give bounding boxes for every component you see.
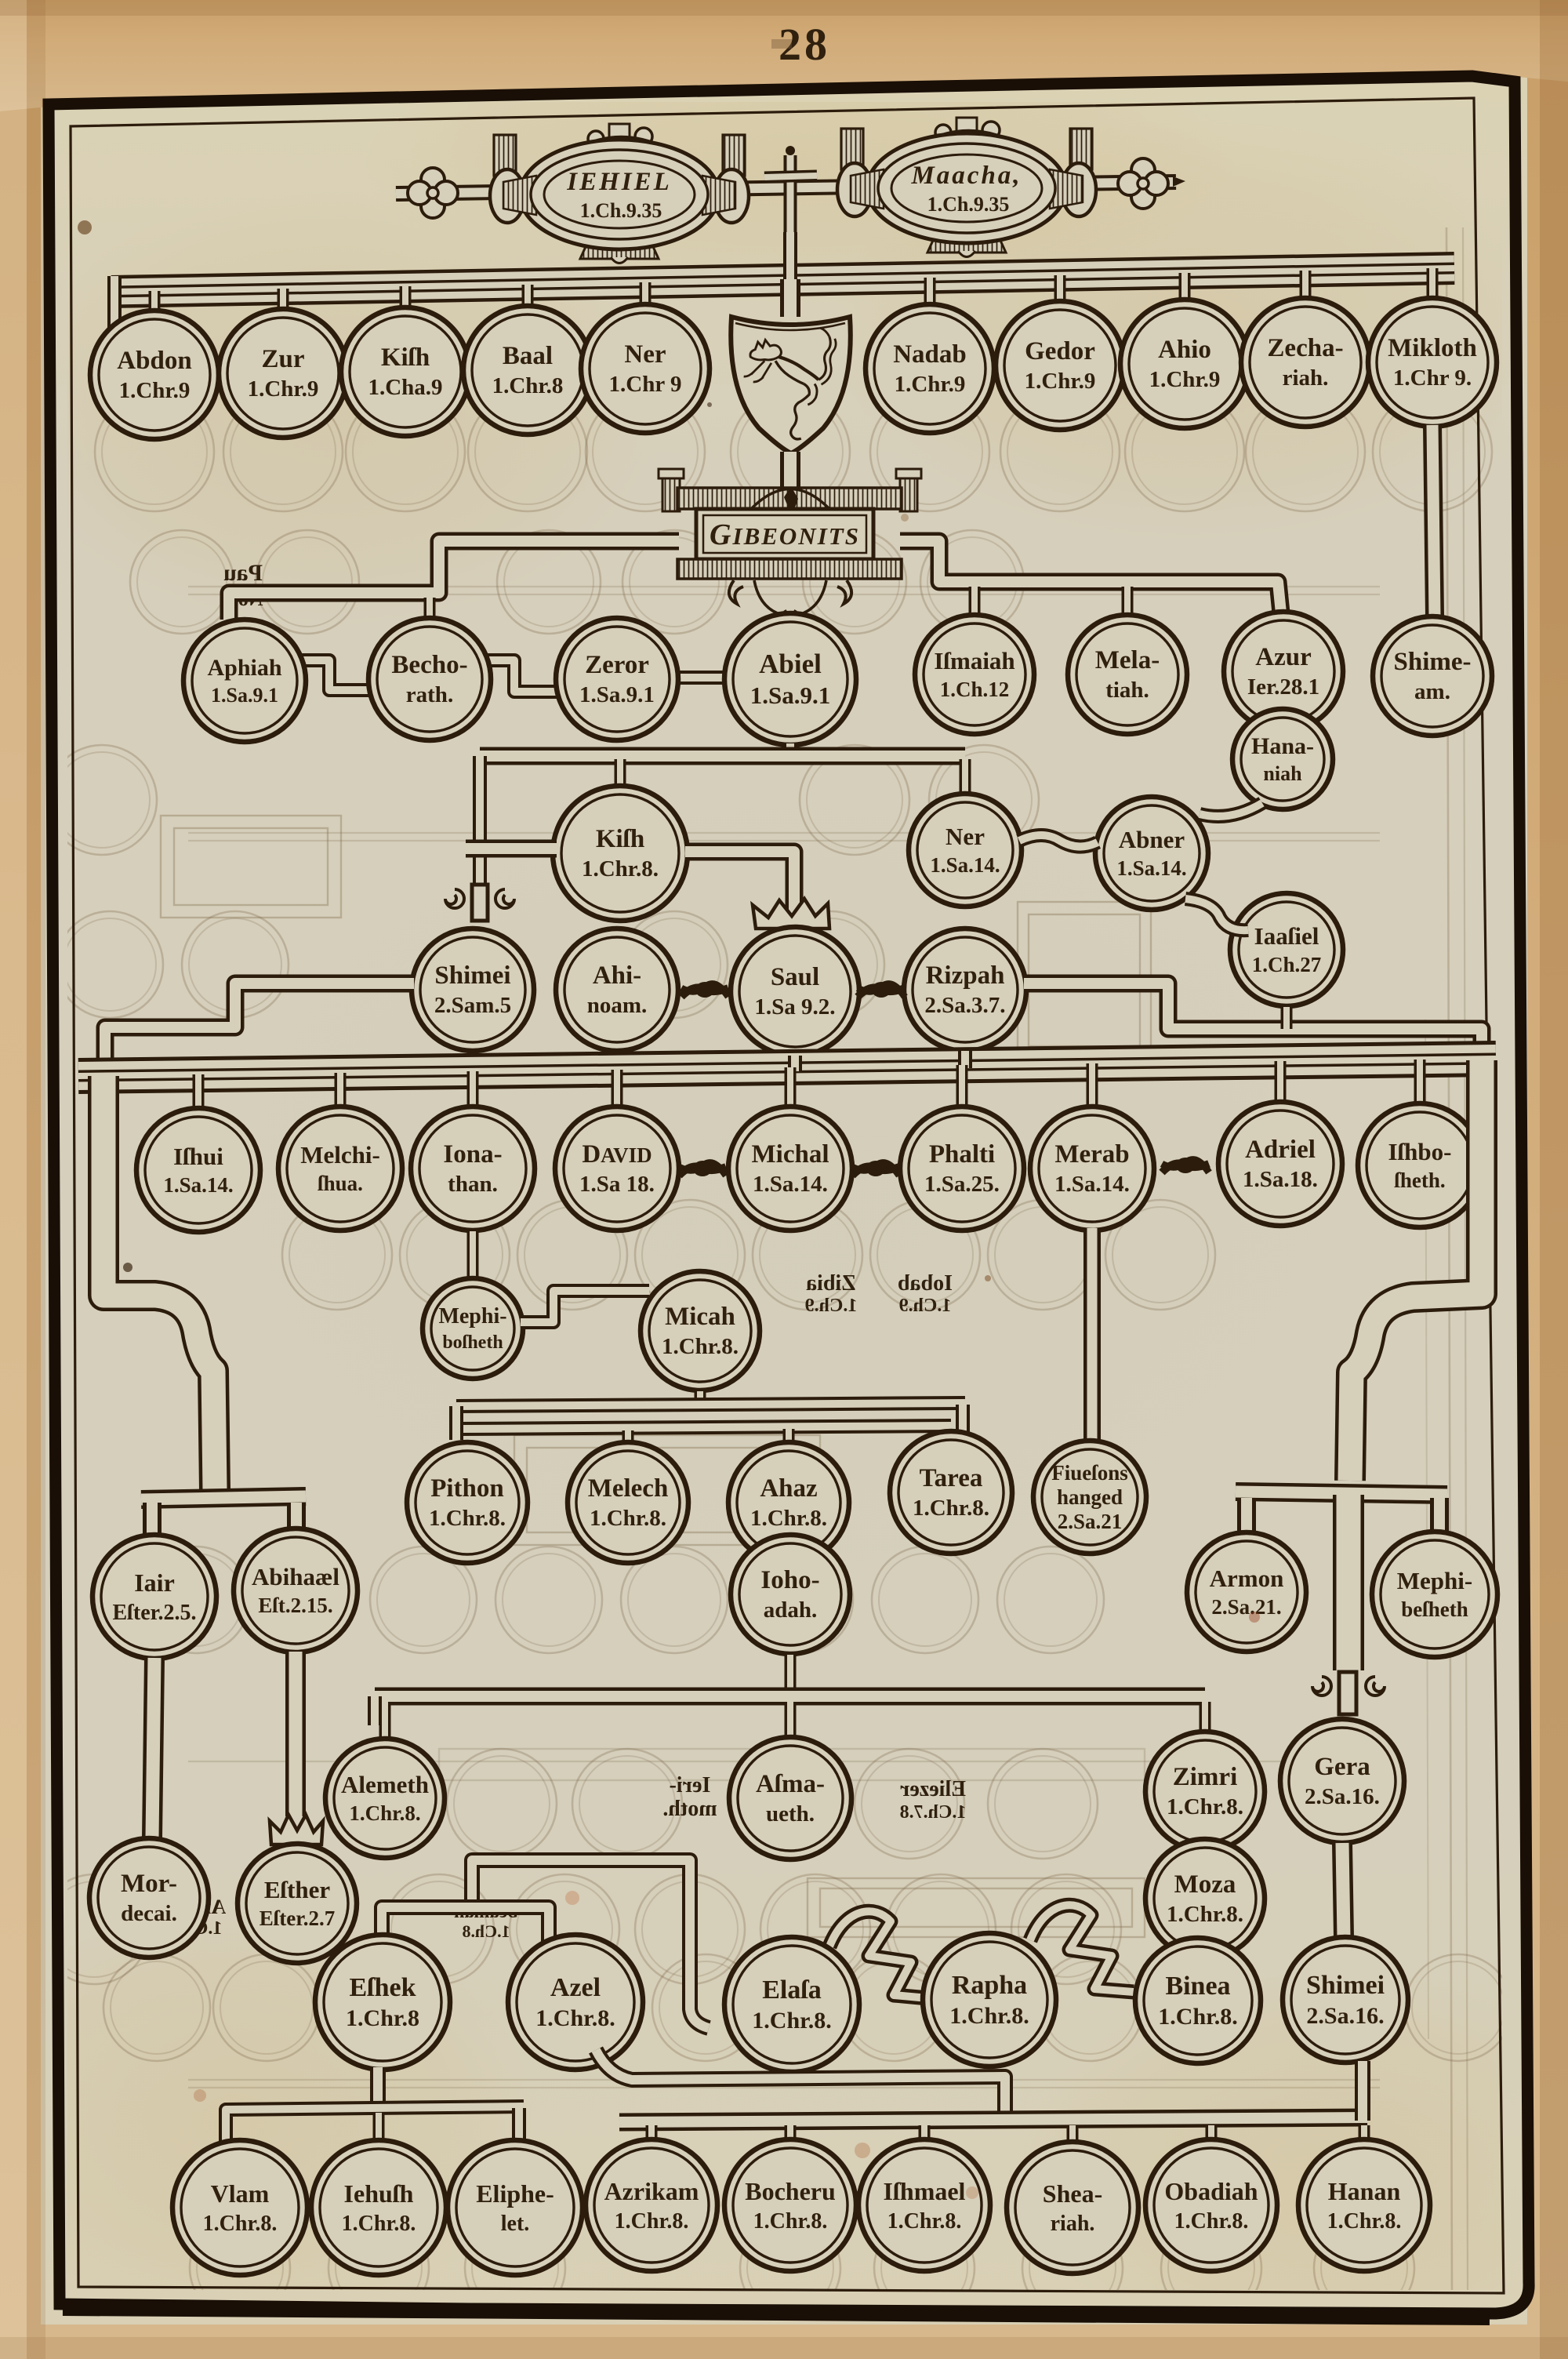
svg-text:1.Chr.8.: 1.Chr.8.	[1158, 2004, 1237, 2030]
svg-text:ſhua.: ſhua.	[318, 1172, 363, 1195]
svg-text:1.Chr.8.: 1.Chr.8.	[342, 2212, 416, 2236]
svg-text:Azur: Azur	[1255, 643, 1311, 671]
svg-text:1.Chr.8: 1.Chr.8	[492, 373, 564, 398]
svg-text:Abner: Abner	[1119, 826, 1185, 853]
svg-text:ueth.: ueth.	[766, 1801, 815, 1826]
svg-text:1.Chr.8.: 1.Chr.8.	[1167, 1794, 1243, 1819]
svg-text:Saul: Saul	[771, 963, 819, 991]
svg-text:Mephi-: Mephi-	[438, 1304, 506, 1329]
svg-text:1.Chr.8.: 1.Chr.8.	[535, 2005, 615, 2031]
svg-text:1.Sa.18.: 1.Sa.18.	[1243, 1167, 1318, 1192]
svg-text:Ioho-: Ioho-	[760, 1566, 819, 1594]
svg-text:Eſter.2.5.: Eſter.2.5.	[112, 1601, 196, 1625]
svg-text:1.Sa.25.: 1.Sa.25.	[924, 1172, 1000, 1197]
svg-text:Melchi-: Melchi-	[300, 1141, 380, 1169]
svg-text:Nadab: Nadab	[893, 340, 967, 369]
svg-text:Mikloth: Mikloth	[1388, 334, 1477, 362]
svg-text:Hana-: Hana-	[1251, 733, 1314, 759]
svg-text:1.Chr.8: 1.Chr.8	[346, 2005, 419, 2031]
svg-text:Ahaz: Ahaz	[760, 1474, 817, 1503]
svg-text:2.Sam.5: 2.Sam.5	[434, 993, 511, 1018]
svg-text:Eſter.2.7: Eſter.2.7	[260, 1906, 336, 1930]
svg-text:Moza: Moza	[1174, 1870, 1236, 1899]
svg-text:Ner: Ner	[624, 340, 666, 369]
svg-text:Iſhui: Iſhui	[173, 1143, 223, 1170]
svg-text:Iehuſh: Iehuſh	[344, 2179, 414, 2208]
svg-text:Zibia: Zibia	[806, 1271, 856, 1296]
svg-text:Phalti: Phalti	[929, 1140, 995, 1169]
svg-text:Abiel: Abiel	[759, 649, 822, 679]
svg-text:1.Chr.8.: 1.Chr.8.	[750, 1506, 827, 1531]
svg-text:adah.: adah.	[764, 1598, 818, 1623]
svg-text:1.Chr.8.: 1.Chr.8.	[1174, 2209, 1249, 2234]
svg-text:IEHIEL: IEHIEL	[566, 168, 672, 196]
svg-text:1.Sa.14.: 1.Sa.14.	[1054, 1172, 1130, 1197]
svg-text:beſheth: beſheth	[1401, 1598, 1468, 1621]
svg-text:1.Chr 9.: 1.Chr 9.	[1393, 365, 1472, 391]
svg-text:GIBEONITS: GIBEONITS	[710, 518, 860, 551]
svg-text:Mor-: Mor-	[121, 1870, 177, 1898]
svg-text:Zur: Zur	[261, 345, 304, 373]
svg-text:Ahi-: Ahi-	[593, 961, 641, 990]
svg-text:Ier.28.1: Ier.28.1	[1247, 674, 1319, 700]
svg-text:1.Ch.9.35: 1.Ch.9.35	[580, 199, 662, 222]
svg-text:1.Sa 9.2.: 1.Sa 9.2.	[754, 994, 835, 1020]
svg-text:1.Ch.8: 1.Ch.8	[462, 1921, 510, 1941]
svg-text:1.Chr 9: 1.Chr 9	[609, 372, 682, 397]
svg-text:1.Chr.9: 1.Chr.9	[248, 376, 319, 402]
svg-text:Fiueſons: Fiueſons	[1051, 1461, 1128, 1485]
svg-text:1.Chr.8.: 1.Chr.8.	[752, 2008, 831, 2034]
svg-text:2.Sa.21: 2.Sa.21	[1058, 1510, 1123, 1533]
svg-text:1.Chr.8.: 1.Chr.8.	[887, 2209, 962, 2234]
svg-text:Elaſa: Elaſa	[762, 1976, 822, 2005]
svg-text:Shea-: Shea-	[1043, 2179, 1102, 2208]
svg-text:1.Ch.9.35: 1.Ch.9.35	[927, 193, 1010, 216]
svg-text:Eliphe-: Eliphe-	[476, 2179, 554, 2208]
svg-text:1.Sa.14.: 1.Sa.14.	[930, 853, 1000, 877]
svg-text:Merab: Merab	[1054, 1140, 1129, 1169]
svg-text:Shimei: Shimei	[1306, 1971, 1385, 2000]
svg-text:1.Chr.8.: 1.Chr.8.	[662, 1334, 739, 1359]
svg-text:Shime-: Shime-	[1394, 648, 1472, 676]
svg-text:Eſther: Eſther	[264, 1876, 331, 1903]
svg-text:Gedor: Gedor	[1025, 337, 1095, 365]
svg-text:1.Ch.12: 1.Ch.12	[940, 678, 1010, 701]
svg-text:1.Sa 18.: 1.Sa 18.	[579, 1172, 655, 1197]
svg-text:noam.: noam.	[587, 993, 648, 1018]
svg-text:Alemeth: Alemeth	[341, 1771, 429, 1798]
svg-text:Azrikam: Azrikam	[604, 2177, 699, 2205]
svg-text:am.: am.	[1414, 679, 1450, 704]
svg-text:Aſma-: Aſma-	[756, 1770, 825, 1798]
svg-text:Rapha: Rapha	[952, 1971, 1027, 2000]
svg-text:1.Ch.9: 1.Ch.9	[805, 1296, 858, 1316]
svg-text:1.Sa.14.: 1.Sa.14.	[753, 1172, 828, 1197]
svg-text:Abdon: Abdon	[117, 347, 191, 375]
svg-text:Azel: Azel	[550, 1973, 601, 2002]
svg-text:Mela-: Mela-	[1095, 646, 1160, 674]
svg-text:than.: than.	[448, 1172, 498, 1197]
svg-text:Adriel: Adriel	[1245, 1136, 1316, 1164]
svg-text:1.Sa.9.1: 1.Sa.9.1	[579, 682, 655, 707]
svg-text:1.Chr.8.: 1.Chr.8.	[913, 1496, 989, 1521]
svg-text:1.Chr.8.: 1.Chr.8.	[590, 1506, 666, 1531]
svg-text:1.Chr.9: 1.Chr.9	[895, 372, 966, 397]
svg-text:Bocheru: Bocheru	[745, 2177, 836, 2205]
svg-text:Becho-: Becho-	[391, 651, 467, 679]
svg-text:Eſhek: Eſhek	[349, 1973, 416, 2002]
svg-text:Armon: Armon	[1210, 1565, 1284, 1592]
svg-text:1.Chr.9: 1.Chr.9	[1025, 369, 1096, 394]
svg-text:Iair: Iair	[134, 1568, 175, 1597]
svg-text:Eliezer: Eliezer	[900, 1777, 966, 1801]
svg-text:2.Sa.16.: 2.Sa.16.	[1306, 2003, 1384, 2029]
svg-text:Iobab: Iobab	[898, 1271, 953, 1296]
svg-text:Micah: Micah	[665, 1303, 735, 1331]
svg-text:rath.: rath.	[406, 682, 453, 707]
svg-text:Shimei: Shimei	[434, 961, 510, 990]
svg-text:1.Chr.8.: 1.Chr.8.	[615, 2209, 689, 2234]
svg-text:Mephi-: Mephi-	[1397, 1567, 1472, 1594]
svg-text:Hanan: Hanan	[1328, 2177, 1401, 2205]
svg-text:1.Chr.8.: 1.Chr.8.	[429, 1506, 506, 1531]
svg-text:Tarea: Tarea	[920, 1464, 983, 1492]
svg-text:1.Sa.9.1: 1.Sa.9.1	[750, 682, 831, 709]
svg-text:Pau: Pau	[223, 560, 263, 586]
svg-text:niah: niah	[1263, 762, 1302, 785]
svg-text:Binea: Binea	[1165, 1972, 1230, 2001]
svg-text:1.Cha.9: 1.Cha.9	[368, 375, 442, 400]
svg-text:DAVID: DAVID	[582, 1140, 652, 1169]
svg-text:Eſt.2.15.: Eſt.2.15.	[258, 1594, 332, 1617]
svg-text:riah.: riah.	[1283, 365, 1329, 391]
svg-text:Iſhbo-: Iſhbo-	[1388, 1138, 1452, 1165]
svg-text:1.Chr.8.: 1.Chr.8.	[753, 2209, 828, 2234]
svg-text:Zimri: Zimri	[1173, 1763, 1237, 1791]
svg-text:2.Sa.21.: 2.Sa.21.	[1211, 1595, 1281, 1619]
svg-text:1.Ch.7.8: 1.Ch.7.8	[900, 1802, 967, 1823]
svg-text:1.Chr.8.: 1.Chr.8.	[349, 1801, 420, 1825]
svg-text:Ner: Ner	[946, 823, 985, 850]
svg-text:Iſhmael: Iſhmael	[884, 2177, 966, 2205]
svg-text:1.Chr.8.: 1.Chr.8.	[1167, 1902, 1243, 1927]
svg-text:Kiſh: Kiſh	[596, 825, 644, 853]
svg-text:Maacha,: Maacha,	[910, 162, 1022, 190]
svg-text:Iona-: Iona-	[443, 1140, 502, 1169]
svg-text:1.Ch.9: 1.Ch.9	[899, 1296, 952, 1316]
svg-text:Pithon: Pithon	[430, 1474, 504, 1503]
svg-text:moth.: moth.	[662, 1797, 717, 1821]
svg-text:Iſmaiah: Iſmaiah	[934, 647, 1014, 674]
svg-text:2.Sa.16.: 2.Sa.16.	[1305, 1784, 1380, 1809]
svg-text:1.Sa.14.: 1.Sa.14.	[1116, 856, 1186, 880]
svg-text:Zeror: Zeror	[585, 651, 649, 679]
svg-text:1.Chr.9: 1.Chr.9	[1149, 367, 1221, 392]
svg-text:Obadiah: Obadiah	[1164, 2177, 1258, 2205]
svg-text:1.Ch.27: 1.Ch.27	[1252, 953, 1322, 976]
svg-text:let.: let.	[501, 2212, 530, 2236]
svg-text:1.Chr.9: 1.Chr.9	[119, 378, 191, 403]
svg-text:Abihaæl: Abihaæl	[252, 1563, 339, 1590]
svg-text:Aphiah: Aphiah	[207, 655, 281, 681]
svg-text:riah.: riah.	[1051, 2212, 1095, 2236]
svg-text:2.Sa.3.7.: 2.Sa.3.7.	[924, 993, 1005, 1018]
svg-text:1.Chr.8.: 1.Chr.8.	[949, 2003, 1029, 2029]
svg-text:decai.: decai.	[121, 1901, 177, 1926]
svg-text:1.Chr.8.: 1.Chr.8.	[203, 2212, 278, 2236]
svg-text:Vlam: Vlam	[211, 2179, 270, 2208]
svg-text:1.Chr.8.: 1.Chr.8.	[582, 856, 659, 881]
svg-text:Ieri-: Ieri-	[670, 1773, 711, 1797]
svg-text:ſheth.: ſheth.	[1394, 1169, 1445, 1192]
svg-text:Kiſh: Kiſh	[381, 343, 430, 372]
svg-text:1.Sa.9.1: 1.Sa.9.1	[211, 684, 278, 707]
svg-text:Baal: Baal	[503, 342, 553, 370]
svg-text:Iaaſiel: Iaaſiel	[1254, 922, 1319, 950]
svg-text:Melech: Melech	[588, 1474, 669, 1503]
svg-text:1.Sa.14.: 1.Sa.14.	[163, 1173, 233, 1197]
svg-text:Michal: Michal	[752, 1140, 829, 1169]
svg-text:1.Chr.8.: 1.Chr.8.	[1327, 2209, 1402, 2234]
svg-text:Zecha-: Zecha-	[1267, 334, 1343, 362]
svg-text:tiah.: tiah.	[1105, 678, 1149, 703]
svg-text:Rizpah: Rizpah	[926, 961, 1005, 990]
svg-text:Gera: Gera	[1314, 1753, 1370, 1781]
svg-text:hanged: hanged	[1057, 1485, 1123, 1509]
svg-text:boſheth: boſheth	[442, 1332, 503, 1353]
svg-text:Ahio: Ahio	[1158, 336, 1211, 364]
